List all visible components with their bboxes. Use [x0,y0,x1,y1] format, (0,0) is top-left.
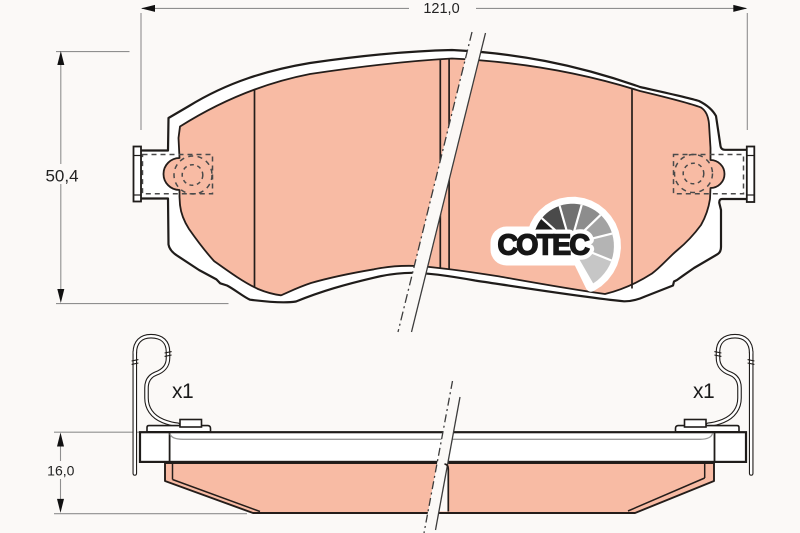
svg-text:121,0: 121,0 [423,1,459,17]
svg-text:50,4: 50,4 [45,167,78,186]
svg-text:16,0: 16,0 [47,463,74,479]
svg-text:COTEC: COTEC [498,230,590,262]
svg-text:x1: x1 [693,380,714,403]
svg-text:x1: x1 [172,380,193,403]
